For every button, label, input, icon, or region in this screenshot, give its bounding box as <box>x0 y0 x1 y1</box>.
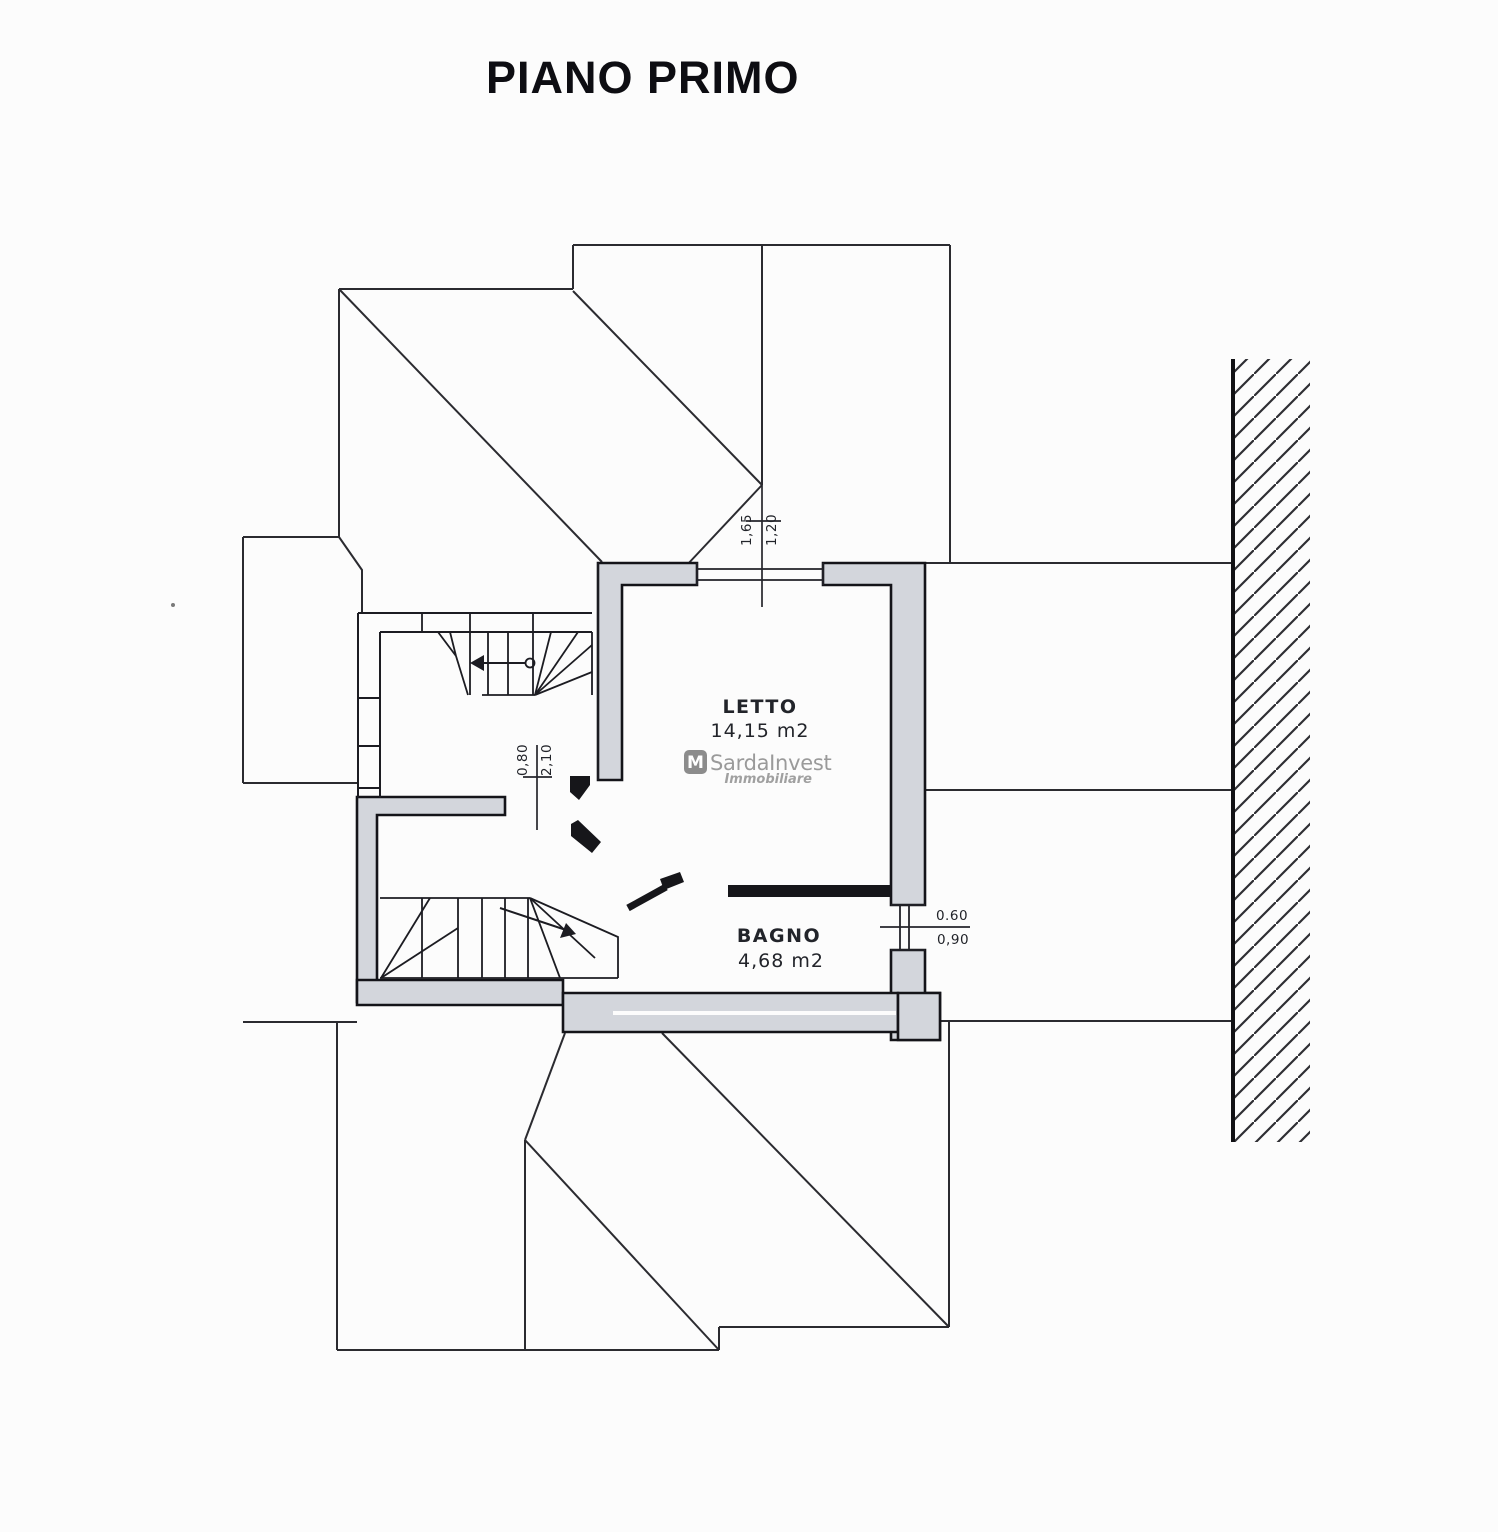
stair-winder <box>438 632 456 656</box>
wall-letto-right <box>823 563 925 905</box>
dim-door-height: 2,10 <box>539 744 555 776</box>
room-name: BAGNO <box>737 925 821 947</box>
room-name: LETTO <box>722 696 797 718</box>
hatch-area <box>1233 359 1310 1142</box>
stairs-lower <box>380 898 618 978</box>
wall-south-left <box>357 980 563 1005</box>
door-jamb-flag <box>570 776 590 800</box>
watermark-logo: M SardaInvest Immobiliare <box>684 750 831 787</box>
logo-icon-letter: M <box>687 753 704 773</box>
dim-bedroom-door: 0,80 2,10 <box>515 744 555 830</box>
dim-window-width: 1,65 <box>739 514 755 546</box>
masonry-walls <box>357 563 940 1040</box>
dim-bath-window-height: 0,90 <box>937 932 969 948</box>
walkline <box>500 908 566 930</box>
room-label-bagno: BAGNO 4,68 m2 <box>737 925 824 972</box>
wall-letto-left <box>598 563 697 780</box>
roof-valley-line <box>525 1033 565 1140</box>
partition-wall <box>728 885 891 897</box>
roof-valley-line <box>525 1140 719 1350</box>
stairs-upper-direction-arrow <box>470 655 535 671</box>
bedroom-window <box>697 563 823 585</box>
bedroom-door-jambs <box>570 776 601 853</box>
dim-window-height: 1,20 <box>764 514 780 546</box>
room-area: 4,68 m2 <box>738 950 824 972</box>
roof-valley-line <box>339 289 602 562</box>
door-jamb-flag <box>660 872 684 890</box>
stairwell-thin-walls <box>358 563 598 798</box>
wall-corner-se <box>898 993 940 1040</box>
room-label-letto: LETTO 14,15 m2 <box>710 696 809 742</box>
scan-speckle <box>171 603 175 607</box>
roof-line <box>339 537 362 614</box>
roof-valley-line <box>573 291 762 485</box>
dim-bath-window-width: 0.60 <box>936 908 968 924</box>
stair-winder <box>535 632 551 695</box>
dim-door-width: 0,80 <box>515 744 531 776</box>
logo-subtitle: Immobiliare <box>724 772 812 787</box>
party-wall-hatched <box>1233 359 1310 1142</box>
stairs-upper <box>422 613 592 695</box>
arrowhead <box>470 655 484 671</box>
stair-winder <box>381 928 458 978</box>
door-jamb-flag <box>571 820 601 853</box>
dim-bath-window: 0.60 0,90 <box>880 908 970 948</box>
room-area: 14,15 m2 <box>710 720 809 742</box>
floor-plan-drawing: 1,65 1,20 0,80 2,10 0.60 0,90 LETTO 14,1… <box>0 0 1498 1532</box>
door-leaf <box>628 887 666 908</box>
arrowhead <box>560 923 576 938</box>
bath-door <box>628 872 684 908</box>
roof-valley-line <box>662 1033 949 1327</box>
stair-winder <box>456 656 468 695</box>
floor-plan-page: PIANO PRIMO <box>0 0 1498 1532</box>
